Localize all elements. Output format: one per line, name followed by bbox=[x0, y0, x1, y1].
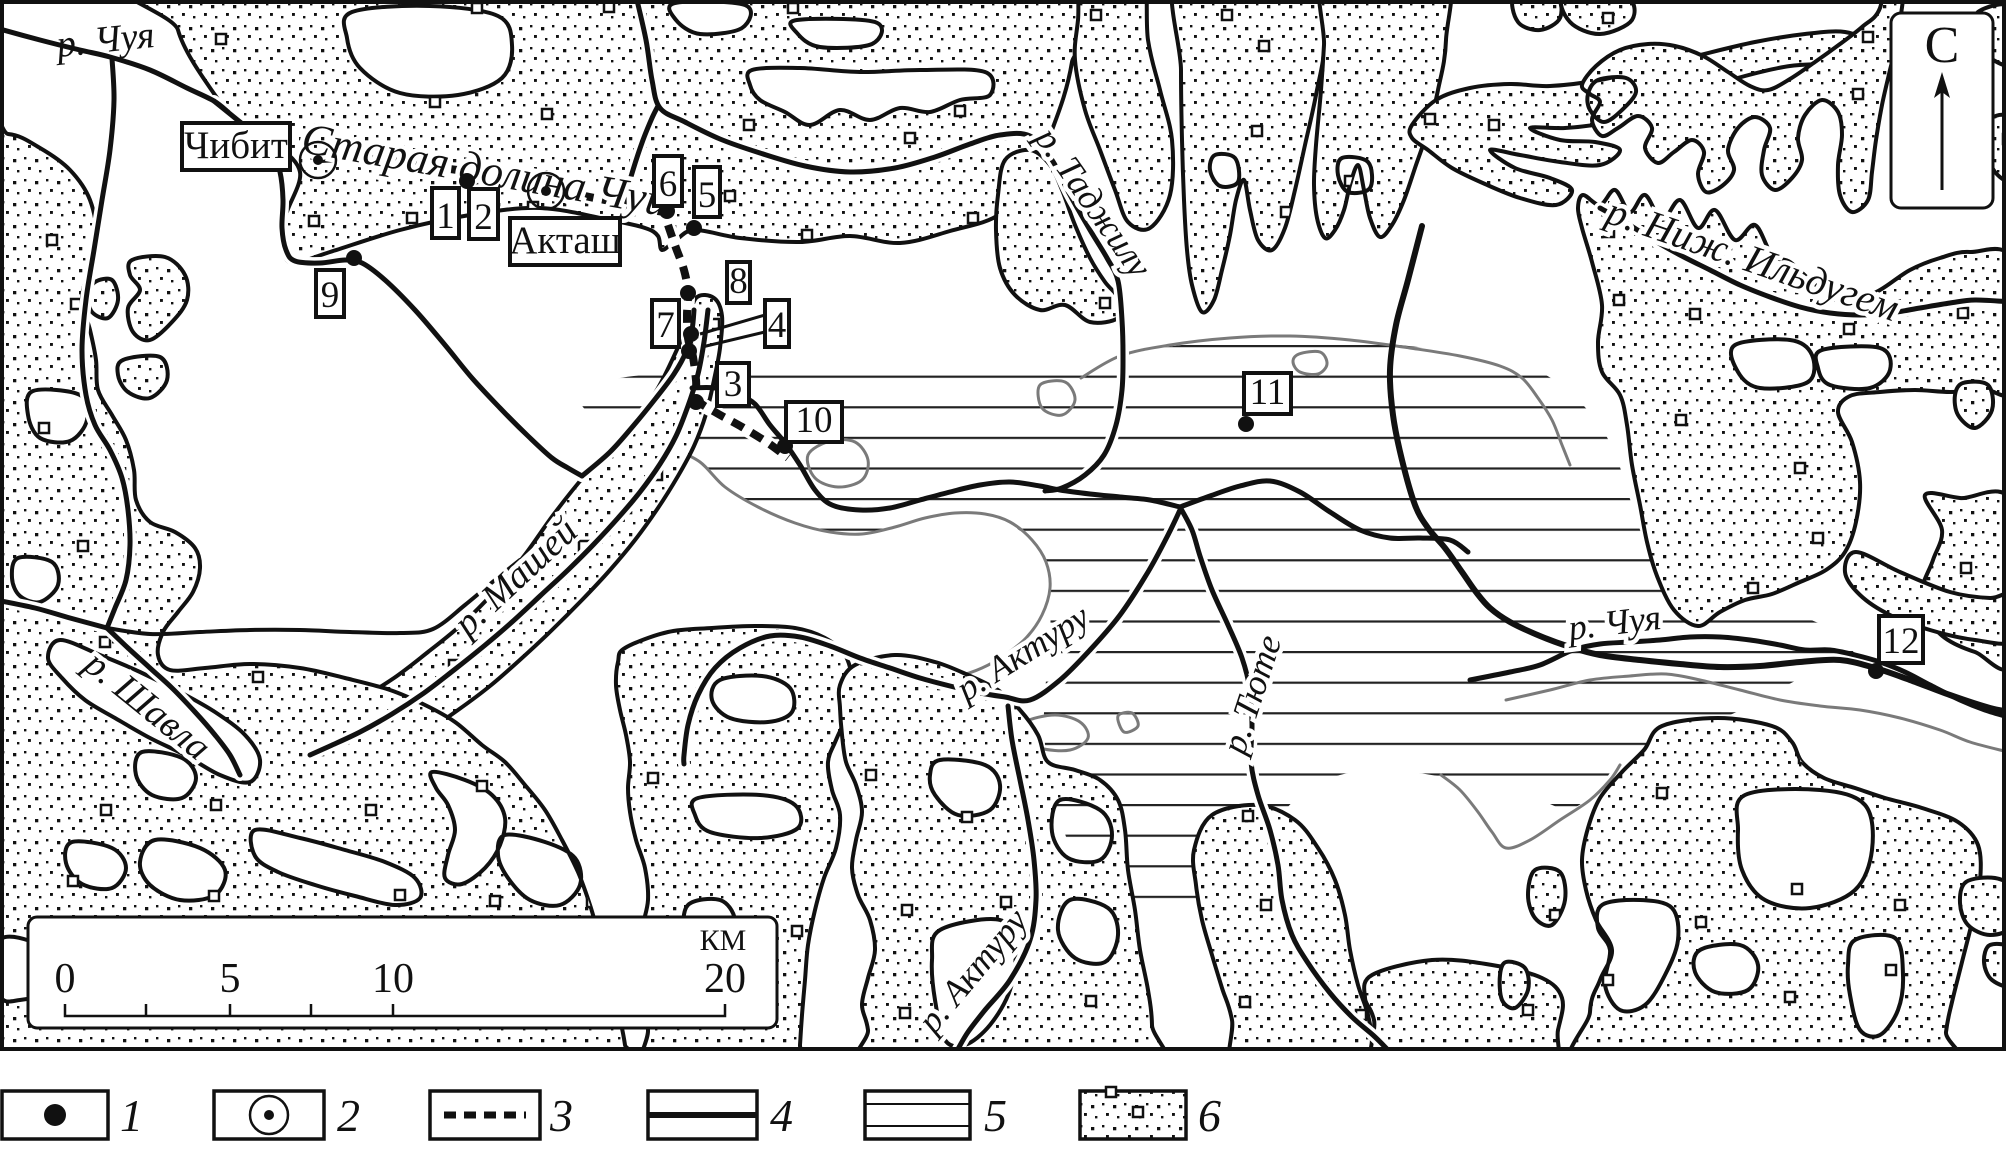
svg-text:8: 8 bbox=[729, 261, 748, 302]
svg-text:3: 3 bbox=[549, 1090, 573, 1141]
svg-text:2: 2 bbox=[474, 197, 493, 238]
svg-text:1: 1 bbox=[436, 196, 455, 237]
svg-text:10: 10 bbox=[796, 400, 833, 441]
svg-text:0: 0 bbox=[55, 956, 76, 1002]
svg-text:2: 2 bbox=[337, 1090, 360, 1141]
svg-text:С: С bbox=[1925, 17, 1960, 74]
svg-text:Чибит: Чибит bbox=[184, 124, 288, 167]
svg-text:4: 4 bbox=[770, 1090, 793, 1141]
svg-text:4: 4 bbox=[768, 305, 787, 346]
svg-text:6: 6 bbox=[1198, 1090, 1221, 1141]
svg-text:5: 5 bbox=[984, 1090, 1007, 1141]
svg-text:КМ: КМ bbox=[700, 924, 747, 957]
svg-text:1: 1 bbox=[120, 1090, 143, 1141]
svg-text:5: 5 bbox=[220, 956, 241, 1002]
svg-text:11: 11 bbox=[1250, 372, 1286, 413]
svg-text:10: 10 bbox=[372, 956, 414, 1002]
svg-text:9: 9 bbox=[321, 275, 340, 316]
svg-text:7: 7 bbox=[656, 305, 675, 346]
svg-text:3: 3 bbox=[724, 364, 743, 405]
svg-text:12: 12 bbox=[1883, 621, 1920, 662]
svg-text:Акташ: Акташ bbox=[509, 219, 620, 262]
svg-text:6: 6 bbox=[659, 164, 678, 205]
svg-text:5: 5 bbox=[698, 175, 717, 216]
svg-text:20: 20 bbox=[704, 956, 746, 1002]
